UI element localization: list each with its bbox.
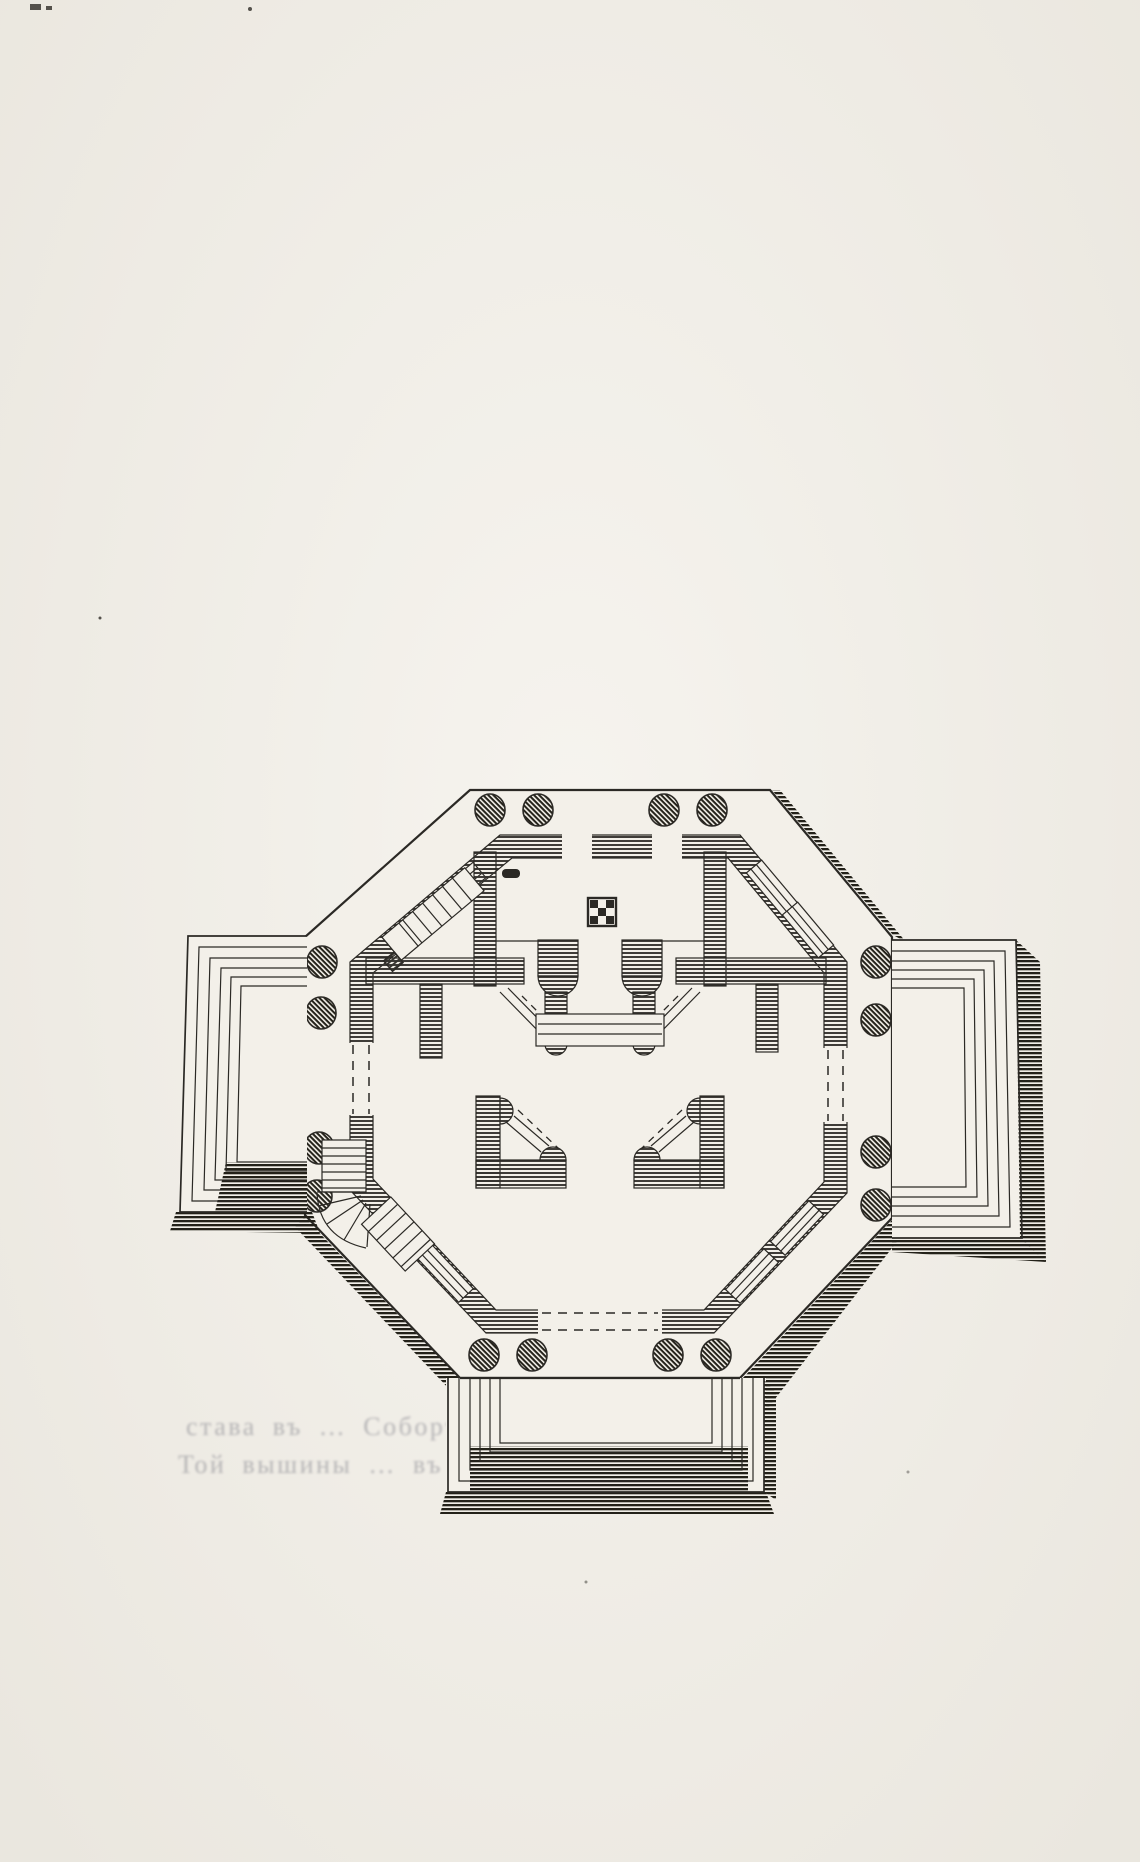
checkerboard-marker [588, 898, 616, 926]
column [653, 1339, 683, 1371]
left-portico-steps [170, 936, 320, 1233]
north-door-gap [652, 831, 682, 862]
column [861, 1189, 891, 1221]
south-door-opening-dashes [538, 1308, 662, 1336]
column [649, 794, 679, 826]
column [475, 794, 505, 826]
right-portico-steps [892, 940, 1046, 1262]
bottom-portico-steps [440, 1378, 776, 1514]
floor-plan-figure [0, 0, 1140, 1862]
column [517, 1339, 547, 1371]
column [523, 794, 553, 826]
west-wall-stub [420, 984, 442, 1058]
east-door-opening-dashes [821, 1048, 850, 1122]
west-door-opening-dashes [347, 1043, 376, 1115]
bench-steps [536, 1014, 664, 1046]
column [469, 1339, 499, 1371]
column [701, 1339, 731, 1371]
column [861, 1004, 891, 1036]
octagon-platform [305, 790, 892, 1378]
east-wall-stub [756, 984, 778, 1052]
column [861, 946, 891, 978]
column [307, 946, 337, 978]
north-door-gap [562, 831, 592, 862]
column [306, 997, 336, 1029]
column [861, 1136, 891, 1168]
scanned-book-page: { "page": { "type": "scanned-book-page",… [0, 0, 1140, 1862]
east-cross-wall [676, 958, 826, 984]
column [697, 794, 727, 826]
small-marker-blob [502, 869, 520, 878]
